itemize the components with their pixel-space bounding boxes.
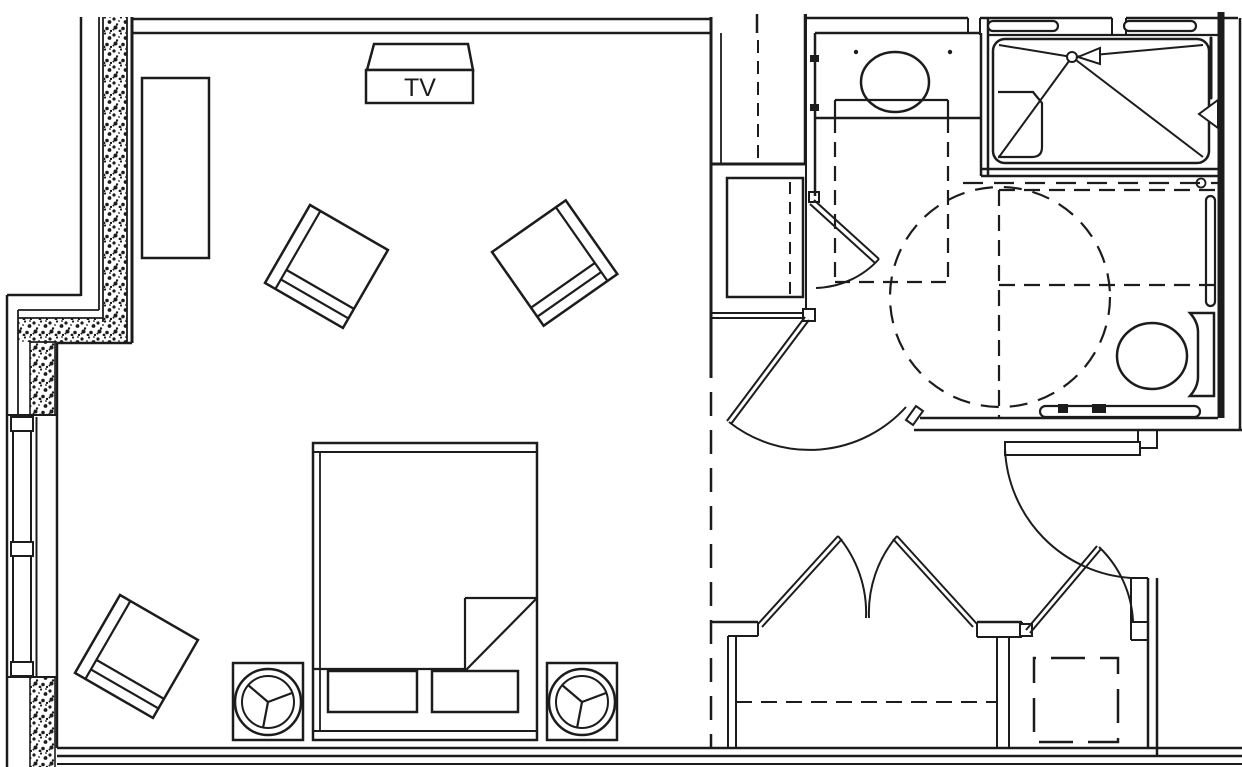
lounge-chair-1 <box>265 205 388 328</box>
toilet <box>1117 313 1214 396</box>
bed <box>313 443 537 740</box>
south-wall <box>57 748 1242 764</box>
toilet-bowl <box>1117 323 1187 389</box>
slope-arrow-icon <box>1078 48 1100 64</box>
grab-bar-icon <box>988 21 1058 31</box>
bed-folded-corner <box>465 598 537 671</box>
window-left <box>7 415 57 677</box>
grab-bar-south <box>1040 404 1200 417</box>
exterior-wall-left <box>7 17 132 767</box>
closet-door-right <box>869 536 977 627</box>
pillow-left <box>328 671 417 712</box>
lounge-chair-3 <box>75 595 198 718</box>
wardrobe-closet <box>711 14 805 164</box>
tv-console: TV <box>366 44 473 103</box>
shower <box>963 21 1218 188</box>
floor-plan-page: TV <box>0 0 1242 767</box>
lamp-icon <box>235 669 301 735</box>
nightstand-right <box>547 663 617 740</box>
nightstand-left <box>233 663 303 740</box>
lounge-chair-2 <box>492 200 617 325</box>
shower-seat <box>998 92 1042 157</box>
bathroom-walls <box>806 12 1242 448</box>
vanity-counter <box>815 50 981 118</box>
floor-plan: TV <box>0 0 1242 767</box>
minibar-cabinet <box>711 178 806 318</box>
door-stop <box>906 406 923 425</box>
equipment-clearance <box>1034 658 1118 742</box>
bathroom-door <box>727 309 923 450</box>
sink-basin <box>861 52 929 112</box>
top-wall <box>132 19 711 33</box>
toilet-tank <box>1190 313 1214 396</box>
grab-bar-icon <box>1124 21 1196 31</box>
alcove-door <box>1020 546 1133 636</box>
closet-double-doors <box>711 536 1022 748</box>
grab-bar-side <box>1206 196 1215 306</box>
dresser <box>142 78 209 258</box>
closet-door-left <box>758 536 866 627</box>
clear-floor-space-vanity <box>835 100 948 282</box>
pillow-right <box>432 671 518 712</box>
clear-floor-space-toilet <box>999 190 1218 418</box>
cabinet-door <box>809 192 879 288</box>
lamp-icon <box>549 669 615 735</box>
tv-label: TV <box>404 74 436 102</box>
foyer-right-wall <box>1131 578 1157 756</box>
entry-door <box>1005 442 1140 578</box>
